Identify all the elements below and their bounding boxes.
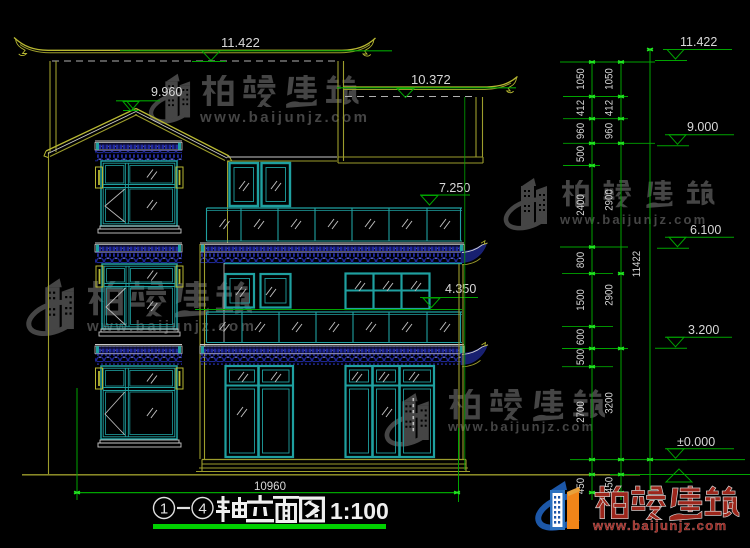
svg-text:800: 800 [576,252,588,268]
svg-text:4.350: 4.350 [445,282,476,296]
svg-text:11.422: 11.422 [680,35,717,49]
svg-text:11.422: 11.422 [221,35,260,50]
svg-text:2900: 2900 [604,189,616,211]
svg-text:960: 960 [604,123,616,139]
svg-text:500: 500 [576,146,588,162]
svg-text:2900: 2900 [604,284,616,306]
svg-text:2400: 2400 [576,194,588,216]
svg-text:4: 4 [198,501,206,518]
svg-text:412: 412 [604,100,616,116]
svg-text:1050: 1050 [576,68,588,90]
svg-text:600: 600 [576,329,588,345]
svg-text:www.baijunjz.com: www.baijunjz.com [592,518,728,533]
svg-text:10.372: 10.372 [411,72,451,87]
svg-text:±0.000: ±0.000 [677,435,715,449]
svg-text:500: 500 [576,349,588,365]
svg-text:2700: 2700 [576,401,588,423]
svg-text:1050: 1050 [604,68,616,90]
svg-text:9.960: 9.960 [151,85,182,99]
svg-text:1500: 1500 [576,289,588,311]
svg-text:3.200: 3.200 [688,323,719,337]
svg-text:7.250: 7.250 [439,181,470,195]
svg-text:3200: 3200 [604,392,616,414]
svg-text:960: 960 [576,123,588,139]
svg-text:412: 412 [576,100,588,116]
svg-text:10960: 10960 [254,481,286,493]
svg-text:9.000: 9.000 [687,120,718,134]
svg-text:www.baijunjz.com: www.baijunjz.com [447,419,595,434]
svg-text:1:100: 1:100 [330,498,389,524]
svg-text:6.100: 6.100 [690,223,721,237]
svg-text:1: 1 [160,501,168,518]
svg-text:11422: 11422 [632,251,644,277]
